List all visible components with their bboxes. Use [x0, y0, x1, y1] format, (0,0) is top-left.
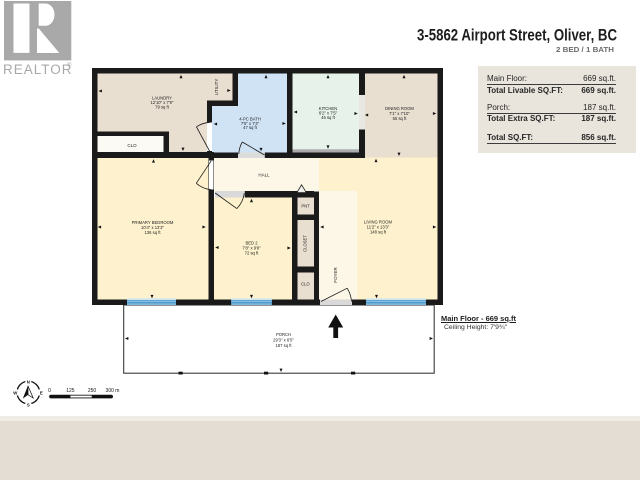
svg-text:FOYER: FOYER [333, 267, 338, 283]
svg-text:148 sq ft: 148 sq ft [370, 230, 387, 235]
svg-text:125: 125 [66, 388, 75, 394]
svg-text:CLO: CLO [127, 143, 137, 148]
svg-text:250: 250 [88, 388, 97, 394]
svg-text:S: S [27, 403, 30, 408]
svg-text:HALL: HALL [258, 173, 270, 178]
svg-text:300 m: 300 m [106, 388, 120, 394]
svg-text:187 sq ft: 187 sq ft [275, 343, 292, 348]
svg-text:CLO: CLO [301, 282, 310, 287]
svg-text:47 sq ft: 47 sq ft [243, 125, 258, 130]
svg-text:UTILITY: UTILITY [214, 79, 219, 96]
svg-text:N: N [27, 379, 30, 384]
svg-text:E: E [40, 390, 43, 395]
svg-text:CLOSET: CLOSET [303, 235, 308, 252]
svg-text:79 sq ft: 79 sq ft [155, 104, 170, 109]
svg-text:72 sq ft: 72 sq ft [245, 251, 260, 256]
svg-text:45 sq ft: 45 sq ft [321, 115, 336, 120]
svg-text:0: 0 [48, 388, 51, 394]
svg-text:55 sq ft: 55 sq ft [393, 116, 408, 121]
svg-text:29'3" x 6'5": 29'3" x 6'5" [273, 338, 294, 343]
svg-text:PNT: PNT [301, 204, 310, 209]
svg-text:PORCH: PORCH [276, 332, 291, 337]
svg-text:136 sq ft: 136 sq ft [144, 230, 161, 235]
